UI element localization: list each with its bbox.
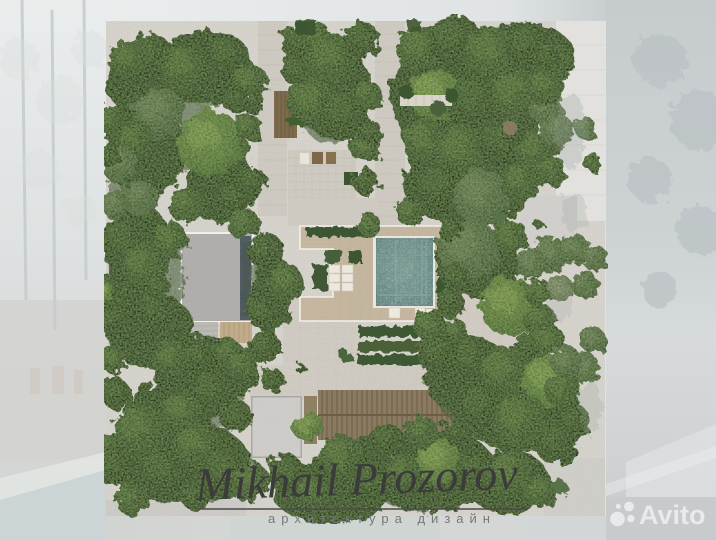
svg-text:архитектура дизайн: архитектура дизайн	[268, 511, 496, 526]
svg-text:Avito: Avito	[639, 500, 706, 530]
